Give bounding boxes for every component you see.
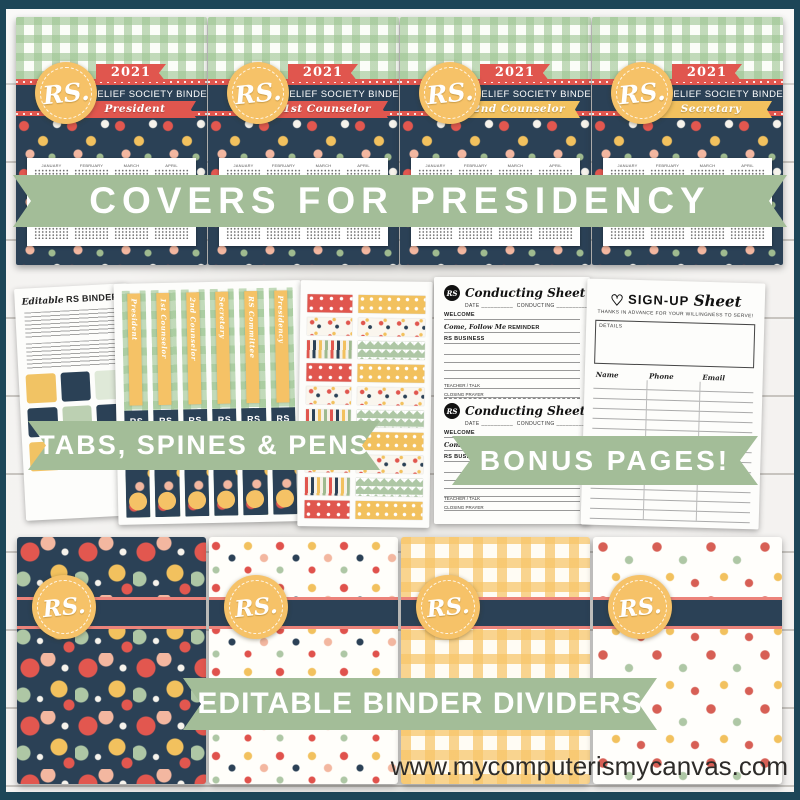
binder-spine: RS CommitteeRSBINDER bbox=[239, 288, 268, 515]
spine-label: 1st Counselor bbox=[159, 298, 169, 359]
pattern-strip bbox=[358, 295, 425, 314]
pattern-strip bbox=[304, 500, 349, 519]
teacher-talk-label: TEACHER / TALK bbox=[444, 496, 580, 502]
binder-cover-1st-counselor: RELIEF SOCIETY BINDER JANUARYFEBRUARYMAR… bbox=[208, 17, 399, 265]
rs-badge: RS. bbox=[611, 62, 673, 124]
signup-sheet-page: ♡ SIGN-UP Sheet THANKS IN ADVANCE FOR YO… bbox=[581, 279, 766, 530]
binder-spine: PresidentRSBINDER bbox=[122, 290, 151, 517]
instruction-text bbox=[24, 308, 120, 339]
spine-label: Secretary bbox=[217, 297, 227, 339]
rs-badge: RS. bbox=[416, 575, 480, 639]
pattern-strip bbox=[307, 340, 352, 359]
pattern-strip-column bbox=[355, 295, 425, 520]
pattern-strip bbox=[356, 478, 423, 497]
spine-label: Presidency bbox=[276, 295, 286, 343]
closing-prayer-label: CLOSING PRAYER bbox=[444, 505, 580, 511]
year-ribbon: 2021 bbox=[480, 64, 550, 82]
binder-cover-president: RELIEF SOCIETY BINDER JANUARYFEBRUARYMAR… bbox=[16, 17, 207, 265]
cover-title: RELIEF SOCIETY BINDER bbox=[474, 89, 589, 100]
pattern-strip bbox=[357, 387, 424, 406]
binder-cover-2nd-counselor: RELIEF SOCIETY BINDER JANUARYFEBRUARYMAR… bbox=[400, 17, 591, 265]
watermark-url: www.mycomputerismycanvas.com bbox=[391, 751, 788, 782]
pattern-strip bbox=[307, 317, 352, 336]
teacher-talk-label: TEACHER / TALK bbox=[444, 383, 580, 389]
rs-badge: RS. bbox=[227, 62, 289, 124]
rs-logo-icon: RS bbox=[444, 285, 460, 301]
spine-label: RS Committee bbox=[247, 296, 257, 359]
product-image-frame: RELIEF SOCIETY BINDER JANUARYFEBRUARYMAR… bbox=[0, 0, 800, 800]
cover-title: RELIEF SOCIETY BINDER bbox=[90, 89, 205, 100]
conducting-sheet-page: RS Conducting Sheet DATE __________ COND… bbox=[434, 277, 590, 524]
pattern-strip bbox=[306, 363, 351, 382]
pattern-strip bbox=[358, 318, 425, 337]
divider-dense-floral: RS. bbox=[17, 537, 206, 784]
rs-badge: RS. bbox=[32, 575, 96, 639]
year-ribbon: 2021 bbox=[288, 64, 358, 82]
divider-tulips: RS. bbox=[209, 537, 398, 784]
binder-spine: 1st CounselorRSBINDER bbox=[151, 290, 180, 517]
pattern-strip bbox=[305, 477, 350, 496]
pattern-strip bbox=[307, 294, 352, 313]
rs-badge: RS. bbox=[608, 575, 672, 639]
rs-badge: RS. bbox=[419, 62, 481, 124]
rs-logo-icon: RS bbox=[444, 403, 460, 419]
rs-business-label: RS BUSINESS bbox=[444, 336, 580, 344]
pen-flags-page bbox=[297, 280, 432, 528]
pattern-strip-column bbox=[304, 294, 352, 519]
details-box: DETAILS bbox=[594, 320, 755, 368]
conducting-sheet: RS Conducting Sheet DATE __________ COND… bbox=[444, 285, 580, 398]
ruled-lines bbox=[444, 347, 580, 381]
conducting-title: Conducting Sheet bbox=[465, 286, 585, 300]
divider-flower-dots: RS. bbox=[593, 537, 782, 784]
tab-swatch bbox=[25, 373, 56, 404]
tab-swatch bbox=[60, 371, 91, 402]
divider-yellow-gingham: RS. bbox=[401, 537, 590, 784]
cover-title: RELIEF SOCIETY BINDER bbox=[666, 89, 781, 100]
year-ribbon: 2021 bbox=[672, 64, 742, 82]
tabs-page-title: Editable RS BINDER TABS bbox=[21, 292, 120, 308]
welcome-label: WELCOME bbox=[444, 312, 580, 320]
pattern-strip bbox=[306, 386, 351, 405]
year-ribbon: 2021 bbox=[96, 64, 166, 82]
binder-spine: PresidencyRSBINDER bbox=[268, 287, 297, 514]
instruction-text bbox=[26, 339, 122, 370]
pattern-strip bbox=[357, 341, 424, 360]
binder-spines-page: PresidentRSBINDER1st CounselorRSBINDER2n… bbox=[113, 280, 305, 525]
reminder-label: Come, Follow Me REMINDER bbox=[444, 323, 580, 333]
pattern-strip bbox=[355, 501, 422, 520]
banner-editable-binder-dividers: EDITABLE BINDER DIVIDERS bbox=[183, 678, 657, 730]
date-conducting-line: DATE __________ CONDUCTING ____________ bbox=[465, 421, 580, 427]
spine-label: President bbox=[129, 298, 139, 340]
banner-bonus-pages: BONUS PAGES! bbox=[452, 436, 758, 485]
banner-tabs-spines-pens: TABS, SPINES & PENS bbox=[28, 421, 380, 470]
rs-badge: RS. bbox=[224, 575, 288, 639]
binder-cover-secretary: RELIEF SOCIETY BINDER JANUARYFEBRUARYMAR… bbox=[592, 17, 783, 265]
binder-spine: 2nd CounselorRSBINDER bbox=[180, 289, 209, 516]
heart-icon: ♡ bbox=[610, 292, 624, 309]
pattern-strip bbox=[357, 364, 424, 383]
cover-title: RELIEF SOCIETY BINDER bbox=[282, 89, 397, 100]
banner-covers-for-presidency: COVERS FOR PRESIDENCY bbox=[13, 175, 787, 227]
signup-title: SIGN-UP bbox=[628, 292, 690, 309]
spine-label: 2nd Counselor bbox=[188, 297, 198, 361]
signup-title-script: Sheet bbox=[694, 292, 742, 311]
date-conducting-line: DATE __________ CONDUCTING ____________ bbox=[465, 303, 580, 309]
conducting-title: Conducting Sheet bbox=[465, 404, 585, 418]
binder-spine: SecretaryRSBINDER bbox=[210, 288, 239, 515]
rs-badge: RS. bbox=[35, 62, 97, 124]
